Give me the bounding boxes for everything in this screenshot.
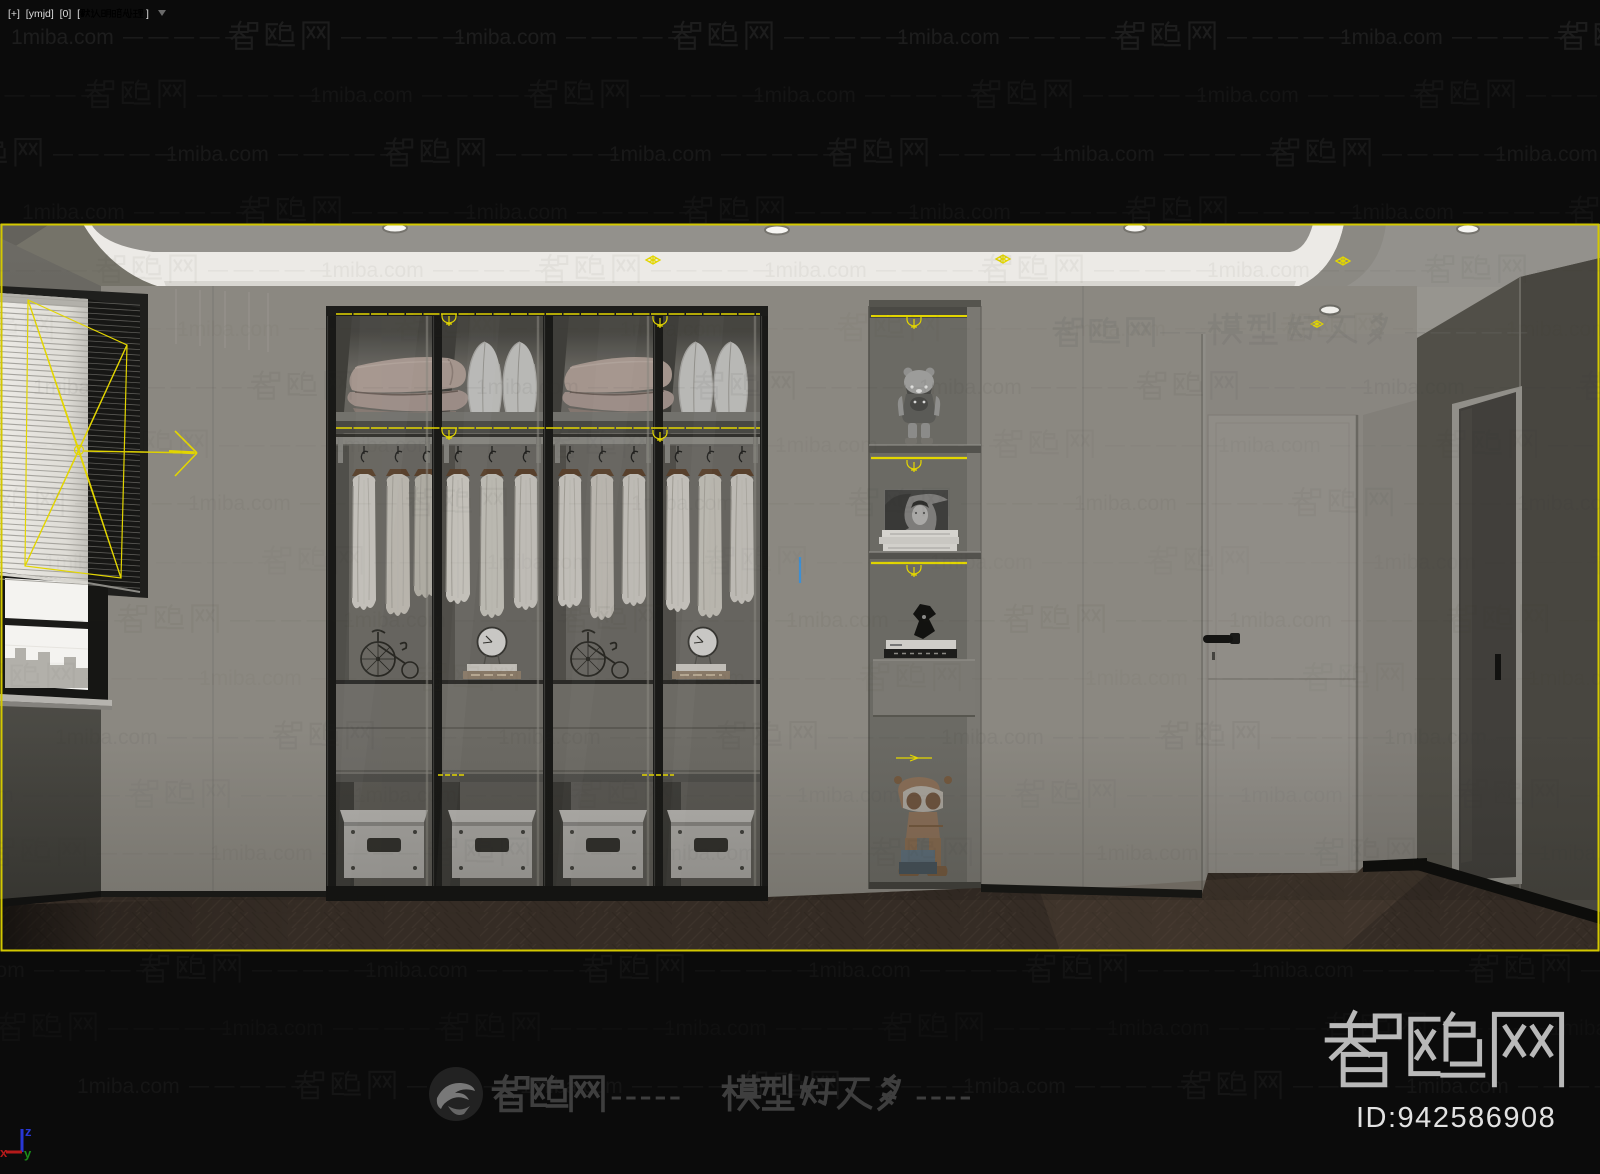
svg-text:y: y xyxy=(24,1146,32,1161)
svg-text:----: ---- xyxy=(915,1075,974,1117)
svg-text:-----: ----- xyxy=(610,1075,683,1117)
svg-text:]: ] xyxy=(146,8,149,20)
svg-text:z: z xyxy=(25,1124,32,1139)
svg-text:ID:942586908: ID:942586908 xyxy=(1356,1102,1556,1134)
svg-text:[+] [ymjd] [0] [: [+] [ymjd] [0] [ xyxy=(8,8,80,20)
svg-text:— — — — —: — — — — — xyxy=(1405,321,1527,343)
svg-text:— —: — — xyxy=(1160,321,1206,343)
svg-text:x: x xyxy=(0,1145,8,1160)
